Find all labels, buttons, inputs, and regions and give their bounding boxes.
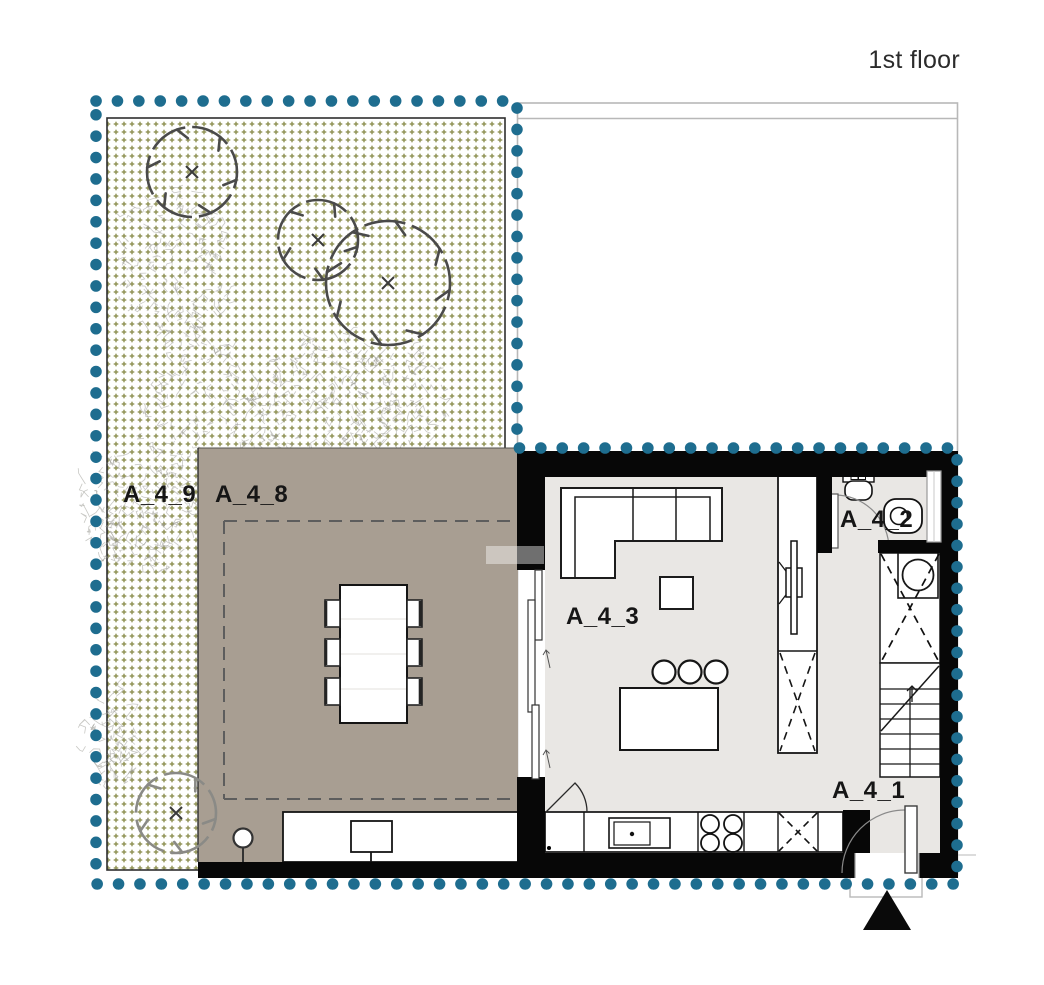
east-wall [940,451,958,878]
room-label-terrace: A_4_8 [215,481,288,509]
coffee-table [620,688,718,750]
room-label-entry: A_4_1 [832,777,905,805]
north-wall [517,451,958,477]
wc-west-wall [817,451,832,553]
terrace-bench [283,812,518,862]
terrace-south-wall [198,862,518,878]
page-title: 1st floor [868,46,960,75]
room-label-wc: A_4_2 [840,506,913,534]
dining-table [340,585,407,723]
room-label-living: A_4_3 [566,603,639,631]
stools [653,661,728,684]
side-table [660,577,693,609]
floor-plan-page: 1st floor A_4_9 A_4_8 A_4_3 A_4_2 A_4_1 [0,0,1044,985]
stairs [880,663,940,777]
room-label-garden: A_4_9 [123,481,196,509]
wc-window [927,471,941,542]
utility-closet [880,553,940,663]
tv-partition [778,475,817,753]
tv-icon [791,541,797,634]
terrace-area [198,448,518,863]
highlight-artifact [486,546,544,564]
kitchen-counter [545,812,843,852]
